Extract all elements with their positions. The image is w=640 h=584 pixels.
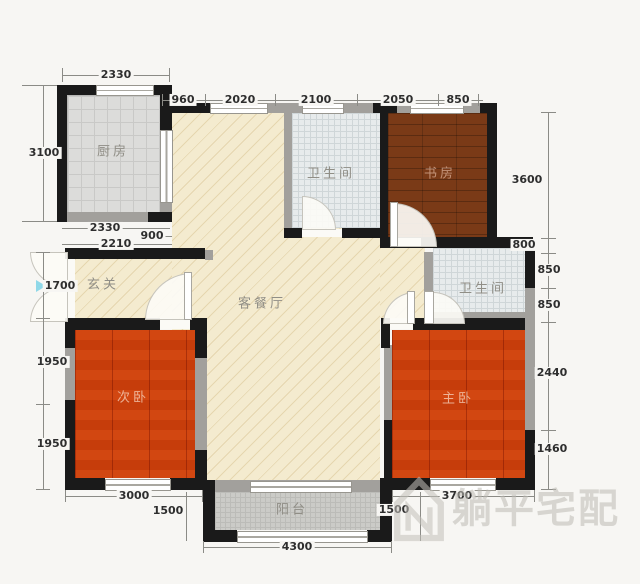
dim-label: 2440 xyxy=(535,367,570,379)
dim-tick xyxy=(22,221,57,222)
wall-segment xyxy=(195,318,207,358)
wall-segment xyxy=(205,250,213,260)
balcony-sliding-door xyxy=(250,481,352,493)
dim-label: 1950 xyxy=(35,356,70,368)
bathroom-top-door-opening xyxy=(302,229,342,237)
wall-segment xyxy=(424,252,433,292)
dim-tick xyxy=(541,322,556,323)
dim-label: 850 xyxy=(536,299,563,311)
dim-tick xyxy=(203,541,204,553)
dim-tick xyxy=(36,252,50,253)
watermark-text: 躺平宅配 xyxy=(452,489,620,529)
dim-label: 2100 xyxy=(299,94,334,106)
dim-label: 1460 xyxy=(535,443,570,455)
floor-plan: 2330 960 2020 2100 2050 850 3100 1700 19… xyxy=(0,0,640,584)
living-dining-label: 客餐厅 xyxy=(238,293,286,312)
master-bedroom-label: 主卧 xyxy=(442,388,474,407)
dim-label: 2330 xyxy=(99,69,134,81)
dim-line xyxy=(186,492,187,541)
kitchen-sliding-door xyxy=(160,130,173,203)
kitchen-label: 厨房 xyxy=(97,141,129,160)
dim-label: 960 xyxy=(170,94,197,106)
dim-tick xyxy=(205,94,206,106)
wall-segment xyxy=(367,530,392,542)
entry-label: 玄关 xyxy=(87,274,119,293)
dim-tick xyxy=(438,94,439,106)
watermark: 躺平宅配 xyxy=(390,474,620,544)
wall-segment xyxy=(268,103,292,113)
dim-label: 3600 xyxy=(510,174,545,186)
wall-segment xyxy=(487,103,497,247)
bathroom-top-label: 卫生间 xyxy=(307,163,355,182)
wall-segment xyxy=(203,530,237,542)
second-bedroom-door-leaf xyxy=(184,272,192,320)
dim-tick xyxy=(162,94,163,106)
dim-tick xyxy=(62,68,63,82)
master-bedroom-door-leaf xyxy=(407,291,415,324)
wall-segment xyxy=(148,212,172,222)
wall-segment xyxy=(65,345,75,403)
balcony-label: 阳台 xyxy=(276,499,308,518)
second-bedroom-label: 次卧 xyxy=(117,387,149,406)
wall-segment xyxy=(384,345,392,423)
dim-tick xyxy=(541,430,556,431)
dim-label: 900 xyxy=(139,230,166,242)
wall-segment xyxy=(284,228,302,238)
study-label: 书房 xyxy=(424,163,456,182)
dim-tick xyxy=(541,112,556,113)
study-door-leaf xyxy=(390,202,398,247)
wall-segment xyxy=(525,248,535,288)
dim-tick xyxy=(541,253,556,254)
dim-tick xyxy=(202,490,203,502)
dim-tick xyxy=(65,490,66,502)
bathroom-right-door-leaf xyxy=(424,291,434,324)
wall-segment xyxy=(284,113,292,228)
dim-label: 1500 xyxy=(151,505,186,517)
wall-segment xyxy=(380,113,388,247)
wall-segment xyxy=(384,420,392,478)
dim-label: 850 xyxy=(536,264,563,276)
dim-tick xyxy=(541,288,556,289)
dim-tick xyxy=(541,238,556,239)
dim-label: 2330 xyxy=(88,222,123,234)
dim-tick xyxy=(36,318,50,319)
second-bedroom-door-opening xyxy=(160,319,190,329)
dim-tick xyxy=(478,94,479,106)
wall-segment xyxy=(525,322,535,432)
dim-tick xyxy=(22,85,57,86)
dim-label: 1950 xyxy=(35,438,70,450)
dim-tick xyxy=(36,489,50,490)
dim-label: 2020 xyxy=(223,94,258,106)
wall-segment xyxy=(170,478,207,490)
dim-label: 1700 xyxy=(43,280,78,292)
wall-segment xyxy=(65,248,205,259)
wall-segment xyxy=(65,478,105,490)
dim-label: 850 xyxy=(445,94,472,106)
dim-tick xyxy=(275,94,276,106)
dim-label: 2210 xyxy=(99,238,134,250)
dim-label: 800 xyxy=(511,239,538,251)
dim-tick xyxy=(357,94,358,106)
dim-label: 3100 xyxy=(27,147,62,159)
dim-label: 2050 xyxy=(381,94,416,106)
kitchen-window xyxy=(96,85,154,96)
house-logo-icon xyxy=(390,474,448,544)
dim-tick xyxy=(36,404,50,405)
dim-label: 4300 xyxy=(280,541,315,553)
dim-label: 3000 xyxy=(117,490,152,502)
wall-segment xyxy=(195,355,207,453)
bathroom-right-label: 卫生间 xyxy=(459,278,507,297)
dim-tick xyxy=(169,68,170,82)
